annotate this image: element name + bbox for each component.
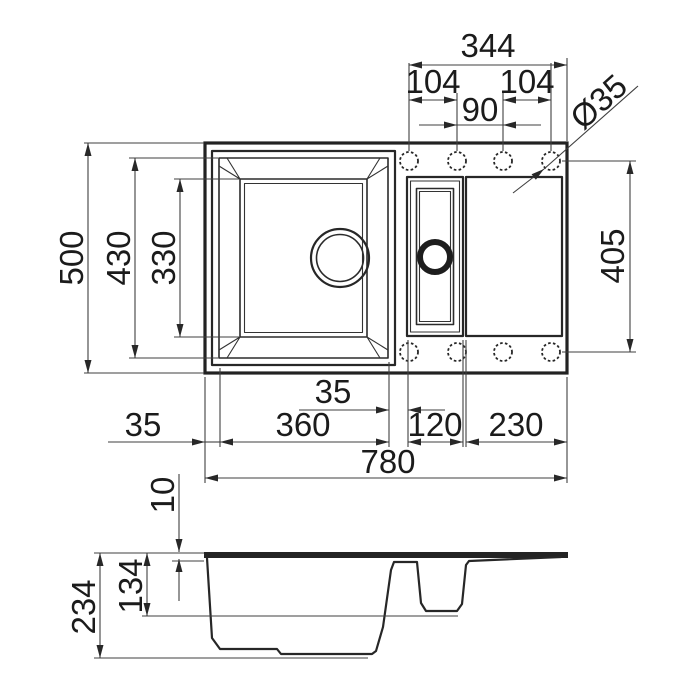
dim-label-bowl-base-depth: 330 [145, 230, 182, 285]
dim-label-total-depth: 234 [65, 579, 102, 634]
tap-hole [400, 343, 418, 361]
dim-label-left-rim: 35 [125, 406, 162, 443]
dim-label-pitch-right: 104 [499, 63, 554, 100]
sink-technical-drawing: 344 104 104 90 Ø35 500 430 330 [0, 0, 700, 700]
tap-hole [448, 152, 466, 170]
tap-hole [542, 152, 560, 170]
dim-label-pitch-left: 104 [405, 63, 460, 100]
main-bowl-base-inner [245, 184, 363, 333]
drainer-board [466, 177, 562, 336]
main-drain-outer [311, 229, 369, 287]
tap-hole [494, 152, 512, 170]
dim-label-pitch-center: 90 [462, 91, 499, 128]
dimensions-side: 10 134 234 [65, 474, 458, 658]
main-bowl [212, 151, 395, 365]
main-drain-inner [317, 235, 364, 282]
side-view: 10 134 234 [65, 474, 568, 658]
side-profile [207, 557, 561, 654]
dimensions-bottom: 35 35 360 120 230 780 [108, 340, 567, 483]
top-view: 344 104 104 90 Ø35 500 430 330 [53, 27, 638, 483]
half-bowl [407, 177, 463, 336]
dim-label-half-bowl-depth: 134 [112, 558, 149, 613]
dim-label-hole-row-span: 405 [594, 228, 631, 283]
dimensions-right: 405 [562, 161, 636, 352]
tap-hole [542, 343, 560, 361]
dim-label-hole-span: 344 [460, 27, 515, 64]
drawing-canvas: 344 104 104 90 Ø35 500 430 330 [0, 0, 700, 700]
half-bowl-drain [420, 242, 450, 272]
dim-label-tap-hole-dia: Ø35 [563, 67, 634, 136]
tap-hole [494, 343, 512, 361]
dim-label-bowl-gap: 35 [315, 373, 352, 410]
tap-hole [400, 152, 418, 170]
half-bowl-base-inner [420, 192, 451, 322]
side-rim [204, 552, 568, 558]
dim-label-drainer-w: 230 [488, 406, 543, 443]
dim-label-overall-depth: 500 [53, 230, 90, 285]
dimensions-top: 344 104 104 90 Ø35 [405, 27, 638, 193]
dim-label-main-bowl-w: 360 [275, 406, 330, 443]
main-bowl-base [240, 179, 367, 337]
dim-label-bowl-cutout-depth: 430 [100, 230, 137, 285]
half-bowl-flange [407, 177, 463, 336]
tap-holes [400, 152, 560, 361]
dim-label-rim-thickness: 10 [144, 477, 181, 514]
dim-label-overall-width: 780 [360, 443, 415, 480]
dim-label-half-bowl-w: 120 [407, 406, 462, 443]
